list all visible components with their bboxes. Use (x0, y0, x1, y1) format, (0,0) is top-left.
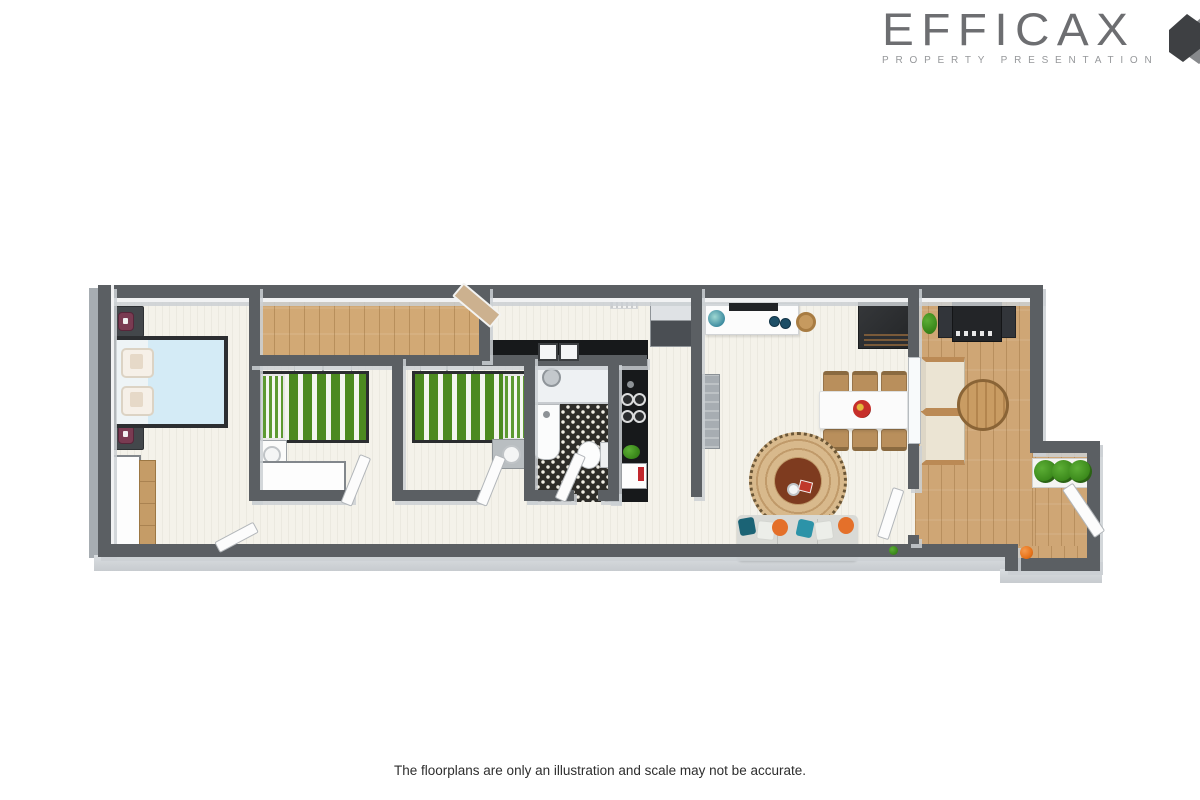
dining-chair (852, 371, 878, 393)
bed-pillow (121, 348, 154, 378)
bedroom1-single-bed (258, 371, 369, 443)
wall-bed2-south (403, 490, 483, 501)
table-lamp-icon (118, 312, 134, 331)
deck-plant (922, 313, 937, 334)
wall-outer-left (98, 285, 114, 557)
burner-icon (633, 393, 646, 406)
dining-chair (823, 371, 849, 393)
bush (1069, 460, 1092, 483)
wall-living-deck-mid (908, 442, 919, 489)
shower (534, 362, 608, 404)
wall-bed1-bed2 (392, 355, 403, 501)
floorplan (0, 0, 1200, 800)
floor-study-nook (259, 297, 483, 361)
wall-master-bed1 (249, 285, 260, 501)
wall-bed2-bath (524, 355, 535, 501)
cooktop (620, 392, 646, 426)
dining-chair (881, 429, 907, 451)
bed-pillow (121, 386, 154, 416)
decor-plate (780, 318, 791, 329)
bathroom-vanity (533, 404, 560, 460)
wicker-basket (796, 312, 816, 332)
wall-deck-bottom (1005, 558, 1100, 571)
cabinet-shelf (864, 334, 908, 346)
orange-ball (1020, 546, 1033, 559)
deck-armchair (920, 411, 965, 465)
wall-living-deck-stub (908, 535, 919, 544)
kitchen-sink-right (559, 343, 579, 361)
globe-decor (708, 310, 725, 327)
dining-chair (881, 371, 907, 393)
burner-icon (633, 410, 646, 423)
decor-plate (769, 316, 780, 327)
bedroom1-wardrobe (252, 461, 346, 493)
master-double-bed (114, 336, 228, 428)
wall-living-deck-upper (908, 285, 919, 357)
sofa-pillow-orange (772, 519, 788, 536)
bed-headboard (261, 374, 285, 440)
small-plant (889, 546, 898, 555)
shower-head-icon (542, 368, 561, 387)
deck-round-table (957, 379, 1009, 431)
deck-glass-door (908, 357, 921, 444)
dining-chair (852, 429, 878, 451)
kitchen-faucet-icon (627, 381, 634, 388)
wall-bath-south-east (598, 490, 619, 501)
sofa-pillow-teal (738, 517, 757, 537)
outer-wall-face-bottom (94, 555, 1018, 571)
faucet-icon (543, 411, 550, 418)
bedroom2-single-bed (412, 371, 530, 443)
wall-outer-bottom (98, 544, 1015, 557)
wall-outer-top (98, 285, 1043, 302)
wall-deck-connector (1005, 544, 1018, 571)
sofa-pillow-white (814, 520, 834, 541)
wall-bed1-south (249, 490, 353, 501)
console-island (702, 374, 720, 449)
master-dresser (139, 460, 156, 549)
refrigerator (650, 299, 692, 347)
nightstand-lamp-top (110, 306, 144, 337)
outer-wall-face-bottom-deck (1000, 569, 1102, 583)
disclaimer-text: The floorplans are only an illustration … (0, 763, 1200, 778)
sofa-pillow-orange (838, 517, 854, 534)
wall-bedrooms-north (249, 355, 647, 366)
bbq-knobs (956, 331, 996, 336)
rug-center (775, 458, 821, 504)
kitchen-plant (623, 445, 640, 459)
coffee-machine (621, 463, 647, 489)
wall-deck-right-upper (1030, 285, 1043, 452)
soundbar-decor (729, 303, 778, 311)
wall-kitchen-living (691, 285, 702, 497)
kitchen-sink-left (538, 343, 558, 361)
fruit-bowl (853, 400, 871, 418)
tall-black-cabinet (858, 299, 914, 349)
wall-bath-east (608, 361, 619, 502)
